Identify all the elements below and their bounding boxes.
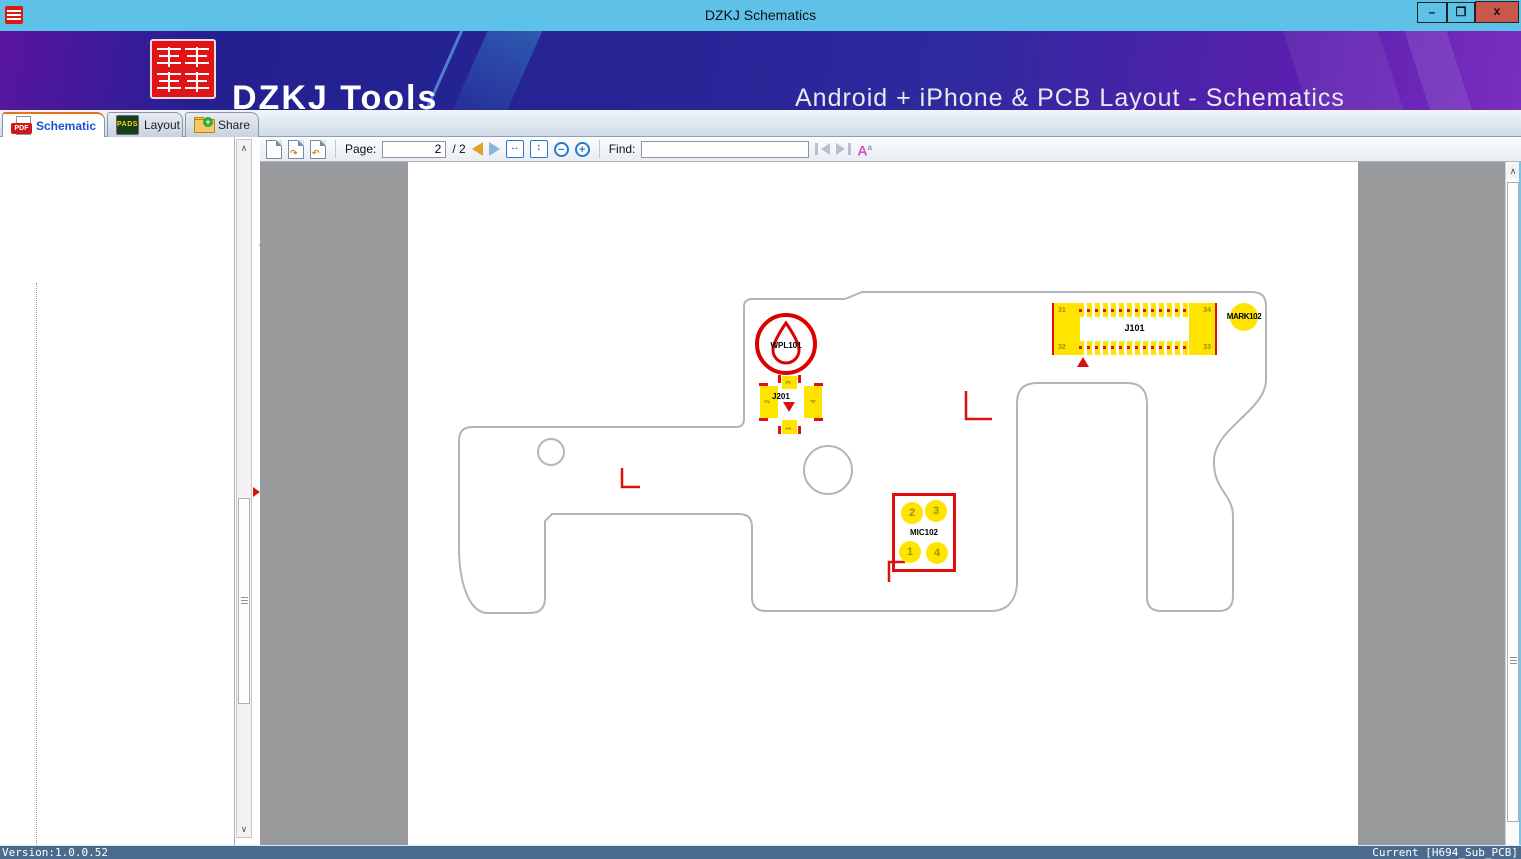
close-button[interactable]: x [1475, 1, 1519, 23]
toolbar-separator [599, 140, 600, 158]
status-bar: Version:1.0.0.52 Current [H694_Sub_PCB] [0, 845, 1521, 859]
tree-guide-line [36, 283, 38, 845]
pdf-toolbar: ↷ ↶ Page: / 2 ↔ ↕ − + Find: Aa [260, 137, 1521, 162]
app-window: DZKJ Schematics – ❐ x DZKJ Tools Android… [0, 0, 1521, 859]
splitter-collapse-icon[interactable] [253, 487, 260, 497]
pdf-page[interactable] [408, 162, 1358, 845]
window-title: DZKJ Schematics [0, 7, 1521, 23]
mic-pin-3: 3 [925, 500, 947, 522]
page-total: / 2 [452, 142, 465, 156]
j201-triangle-icon [783, 402, 795, 412]
tab-share[interactable]: + Share [185, 112, 259, 137]
zoom-in-button[interactable]: + [575, 142, 590, 157]
maximize-button[interactable]: ❐ [1447, 2, 1475, 23]
scroll-down-icon[interactable]: ∨ [238, 822, 250, 836]
zoom-out-button[interactable]: − [554, 142, 569, 157]
page-import-icon[interactable]: ↷ [288, 140, 304, 159]
tab-schematic-label: Schematic [36, 119, 96, 133]
pdf-canvas[interactable] [260, 162, 1505, 845]
brand-title: DZKJ Tools [232, 79, 438, 110]
find-next-icon[interactable] [836, 143, 851, 155]
banner-streak [446, 31, 545, 110]
j201-connector: 2 3 4 1 J201 [758, 374, 824, 436]
dzkj-logo [150, 39, 216, 99]
schematic-tree-panel [0, 137, 235, 845]
page-label: Page: [345, 142, 376, 156]
tab-share-label: Share [218, 118, 250, 132]
mic-pin-4: 4 [926, 542, 948, 564]
fit-page-button[interactable]: ↕ [530, 140, 548, 158]
banner-subtitle: Android + iPhone & PCB Layout - Schemati… [795, 84, 1345, 110]
banner: DZKJ Tools Android + iPhone & PCB Layout… [0, 31, 1521, 110]
mic-pin-2: 2 [901, 502, 923, 524]
pads-icon: PADS [116, 115, 139, 135]
find-previous-icon[interactable] [815, 143, 830, 155]
find-input[interactable] [641, 141, 809, 158]
canvas-scrollbar[interactable]: ∧ [1505, 162, 1521, 845]
find-label: Find: [609, 142, 636, 156]
toolbar-separator [335, 140, 336, 158]
tab-layout-label: Layout [144, 118, 180, 132]
scroll-up-icon[interactable]: ∧ [238, 141, 250, 155]
scroll-up-icon[interactable]: ∧ [1507, 164, 1519, 178]
current-doc-text: Current [H694_Sub_PCB] [1372, 846, 1518, 859]
tab-bar: PDF Schematic PADS Layout + Share Welcom… [0, 110, 1521, 137]
mic102-microphone: 2 3 1 4 MIC102 [892, 493, 956, 572]
next-page-button[interactable] [489, 142, 500, 156]
tree-scrollbar[interactable]: ∧ ∨ [236, 139, 252, 838]
tab-layout[interactable]: PADS Layout [107, 112, 183, 137]
prev-page-button[interactable] [472, 142, 483, 156]
j101-connector: 31 34 32 33 J101 [1052, 303, 1217, 355]
wpl101-marker: WPL101 [755, 313, 817, 375]
wpl101-label: WPL101 [759, 341, 813, 350]
j201-label: J201 [772, 392, 790, 401]
banner-streak [1401, 31, 1479, 110]
mic-pin-1: 1 [899, 541, 921, 563]
version-text: Version:1.0.0.52 [2, 846, 108, 859]
minimize-button[interactable]: – [1417, 2, 1447, 23]
tree-scrollbar-thumb[interactable] [238, 498, 250, 704]
pdf-icon: PDF [11, 116, 31, 135]
canvas-scrollbar-thumb[interactable] [1507, 182, 1519, 822]
j101-label: J101 [1052, 323, 1217, 333]
fit-width-button[interactable]: ↔ [506, 140, 524, 158]
title-bar: DZKJ Schematics – ❐ x [0, 0, 1521, 31]
mark102-label: MARK102 [1216, 312, 1272, 321]
page-number-input[interactable] [382, 141, 446, 158]
match-case-icon[interactable]: Aa [857, 141, 872, 158]
share-folder-icon: + [194, 117, 213, 134]
page-copy-icon[interactable] [266, 140, 282, 159]
tab-schematic[interactable]: PDF Schematic [2, 112, 105, 137]
mic102-label: MIC102 [895, 528, 953, 537]
page-export-icon[interactable]: ↶ [310, 140, 326, 159]
pin1-triangle-icon [1077, 357, 1089, 367]
